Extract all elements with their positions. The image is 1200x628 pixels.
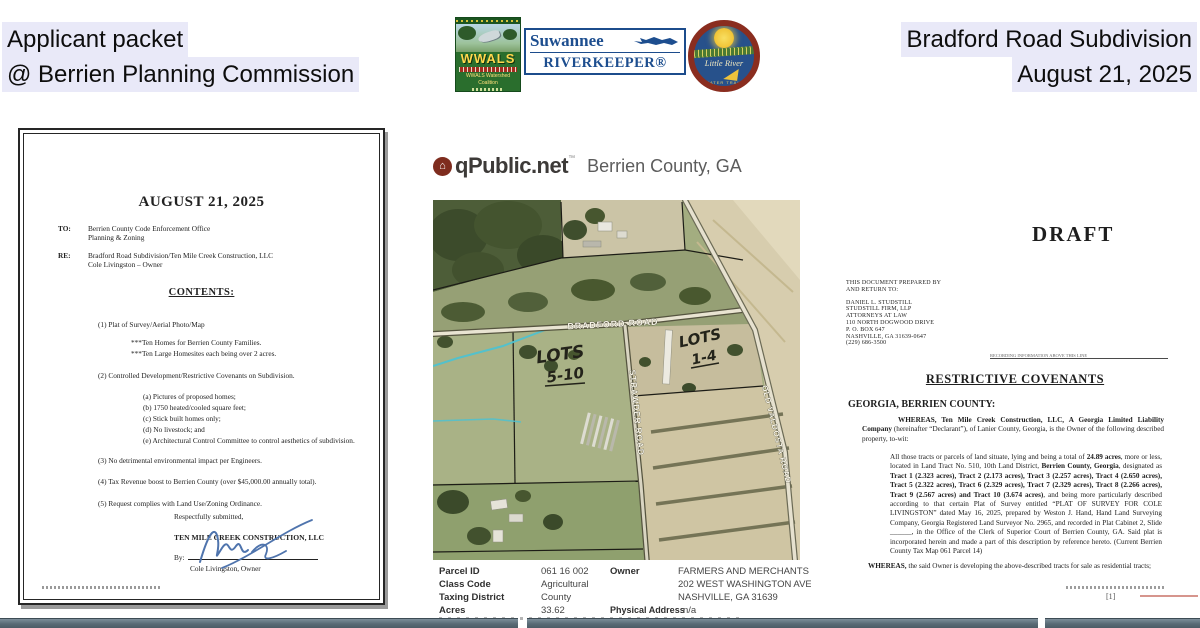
page-number: [1] [1106, 592, 1115, 601]
re-line1: Bradford Road Subdivision/Ten Mile Creek… [88, 251, 273, 260]
covenants-heading: RESTRICTIVE COVENANTS [840, 372, 1190, 387]
by-label: By: [174, 553, 185, 562]
parcel-value: 33.62 [541, 605, 565, 616]
trademark-symbol: ™ [568, 155, 575, 162]
re-label: RE: [58, 251, 88, 269]
parcel-value: 061 16 002 [541, 566, 589, 577]
parcel-label: Class Code [439, 579, 491, 590]
restrictive-covenants-page: DRAFT THIS DOCUMENT PREPARED BY AND RETU… [820, 110, 1200, 618]
owner-line3: NASHVILLE, GA 31639 [678, 592, 778, 603]
physical-address-label: Physical Address [610, 605, 685, 615]
list-subitem: (c) Stick built homes only; [143, 413, 357, 424]
parcel-value: Agricultural [541, 579, 589, 590]
sail-icon [723, 67, 739, 81]
parcel-label: Parcel ID [439, 566, 480, 577]
to-line2: Planning & Zoning [88, 233, 210, 242]
parcel-label: Acres [439, 605, 465, 616]
owner-line2: 202 WEST WASHINGTON AVE [678, 579, 811, 590]
attorney-line: 110 NORTH DOGWOOD DRIVE [846, 320, 941, 327]
qpublic-brand: qPublic.net [455, 153, 568, 179]
recording-info-rule: RECORDING INFORMATION ABOVE THIS LINE [990, 353, 1168, 359]
contents-list: (1) Plat of Survey/Aerial Photo/Map ***T… [98, 320, 357, 508]
attorney-line: STUDSTILL FIRM, LLP [846, 306, 941, 313]
sun-icon [714, 28, 734, 48]
list-subitem: (d) No livestock; and [143, 424, 357, 435]
signer-name: Cole Livingston, Owner [190, 564, 364, 573]
wwals-url-smudge [472, 88, 504, 91]
header-subject-line1: Bradford Road Subdivision [901, 22, 1197, 57]
riverkeeper-word-suwannee: Suwannee [530, 31, 632, 51]
header-date-line2: August 21, 2025 [1012, 57, 1197, 92]
to-label: TO: [58, 224, 88, 242]
covenants-paragraph-1: WHEREAS, Ten Mile Creek Construction, LL… [862, 416, 1164, 444]
covenants-property-description: All those tracts or parcels of land situ… [890, 453, 1162, 556]
attorney-line: (229) 686-3500 [846, 340, 941, 347]
owner-label: Owner [610, 566, 640, 577]
scan-artifact-line [1140, 595, 1198, 597]
covenants-paragraph-2: WHEREAS, the said Owner is developing th… [836, 562, 1164, 571]
owner-line1: FARMERS AND MERCHANTS BA [678, 566, 811, 577]
prepared-by-block: THIS DOCUMENT PREPARED BY AND RETURN TO:… [846, 280, 941, 347]
header-title-line1: Applicant packet [2, 22, 188, 57]
jurisdiction-line: GEORGIA, BERRIEN COUNTY: [848, 399, 995, 410]
re-line2: Cole Livingston – Owner [88, 260, 273, 269]
draft-footer-smudge [1066, 586, 1166, 589]
badge-trail-label: WATER TRAIL [694, 80, 754, 85]
applicant-letter-page: AUGUST 21, 2025 TO: Berrien County Code … [18, 128, 385, 605]
riverkeeper-word-riverkeeper: RIVERKEEPER® [530, 53, 680, 73]
qpublic-header: qPublic.net ™ Berrien County, GA [433, 148, 742, 184]
county-title: Berrien County, GA [587, 156, 742, 177]
signature-line [188, 551, 318, 560]
letter-to-block: TO: Berrien County Code Enforcement Offi… [58, 224, 210, 242]
qpublic-icon [433, 157, 452, 176]
parcel-info-table: Parcel ID 061 16 002 Class Code Agricult… [433, 562, 811, 620]
list-subitem: ***Ten Homes for Berrien County Families… [131, 338, 357, 349]
wwals-art [456, 24, 520, 53]
to-line1: Berrien County Code Enforcement Office [88, 224, 210, 233]
header-right: Bradford Road Subdivision August 21, 202… [901, 22, 1197, 92]
prepared-by-line: THIS DOCUMENT PREPARED BY [846, 280, 941, 287]
list-item: (2) Controlled Development/Restrictive C… [98, 371, 357, 380]
badge-band-smudge [690, 46, 760, 59]
wwals-name: WWALS [456, 52, 520, 66]
list-subitem: (a) Pictures of proposed homes; [143, 391, 357, 402]
wwals-subtitle: WWALS Watershed Coalition [456, 73, 520, 87]
attorney-line: P. O. BOX 647 [846, 327, 941, 334]
list-item: (4) Tax Revenue boost to Berrien County … [98, 477, 357, 486]
list-subitem: ***Ten Large Homesites each being over 2… [131, 349, 357, 360]
list-item: (1) Plat of Survey/Aerial Photo/Map [98, 320, 357, 329]
closing-line: Respectfully submitted, [174, 512, 364, 521]
sturgeon-fish-icon [632, 34, 680, 49]
list-item: (5) Request complies with Land Use/Zonin… [98, 499, 357, 508]
wwals-logo: WWALS WWALS Watershed Coalition [455, 17, 521, 92]
letter-re-block: RE: Bradford Road Subdivision/Ten Mile C… [58, 251, 273, 269]
list-item: (3) No detrimental environmental impact … [98, 456, 357, 465]
fish-icon [477, 29, 501, 44]
wwals-redband-smudge [459, 67, 517, 72]
letter-footer-smudge [42, 586, 160, 589]
attorney-line: DANIEL L. STUDSTILL [846, 300, 941, 307]
parcel-label: Taxing District [439, 592, 504, 603]
suwannee-riverkeeper-logo: Suwannee RIVERKEEPER® [524, 28, 686, 75]
list-subitem: (b) 1750 heated/cooled square feet; [143, 402, 357, 413]
contents-heading: CONTENTS: [24, 288, 379, 297]
company-name: TEN MILE CREEK CONSTRUCTION, LLC [174, 533, 364, 542]
parcel-value: County [541, 592, 571, 603]
attorney-line: ATTORNEYS AT LAW [846, 313, 941, 320]
tree-icon [458, 26, 476, 40]
tree-icon [503, 29, 517, 40]
letter-title: AUGUST 21, 2025 [24, 198, 379, 207]
header-left: Applicant packet @ Berrien Planning Comm… [2, 22, 359, 92]
physical-address-value: n/a [683, 605, 696, 616]
prepared-by-line: AND RETURN TO: [846, 287, 941, 294]
header-title-line2: @ Berrien Planning Commission [2, 57, 359, 92]
letter-closing-block: Respectfully submitted, TEN MILE CREEK C… [174, 512, 364, 573]
aerial-parcel-map: BRADFORD ROAD STRAWDER ROAD OLD VALDOSTA… [433, 200, 800, 560]
little-river-water-trail-badge: Little River WATER TRAIL [688, 20, 760, 92]
draft-watermark: DRAFT [1032, 222, 1114, 247]
list-subitem: (e) Architectural Control Committee to c… [143, 435, 357, 446]
